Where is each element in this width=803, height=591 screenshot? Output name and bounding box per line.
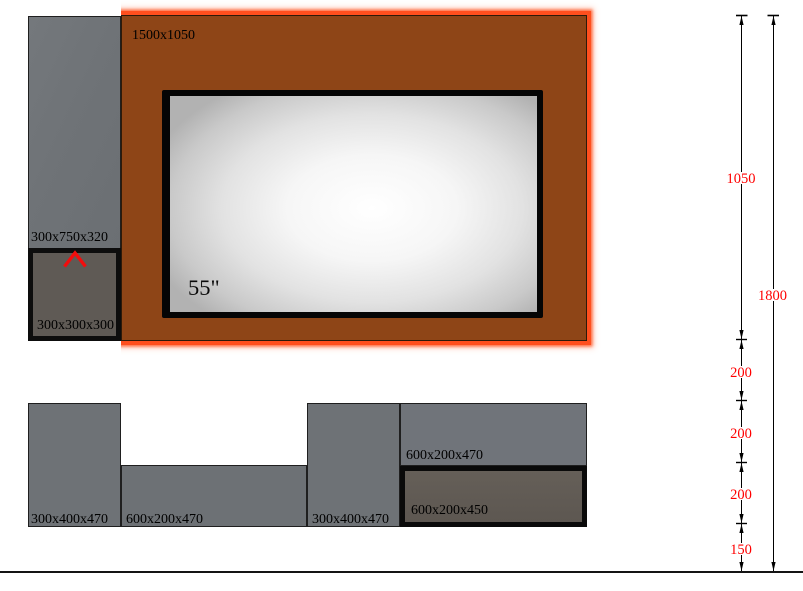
svg-text:150: 150	[730, 542, 752, 558]
svg-text:1050: 1050	[727, 171, 756, 187]
svg-text:200: 200	[730, 365, 752, 381]
svg-text:1800: 1800	[758, 288, 787, 304]
svg-text:200: 200	[730, 487, 752, 503]
svg-text:200: 200	[730, 426, 752, 442]
